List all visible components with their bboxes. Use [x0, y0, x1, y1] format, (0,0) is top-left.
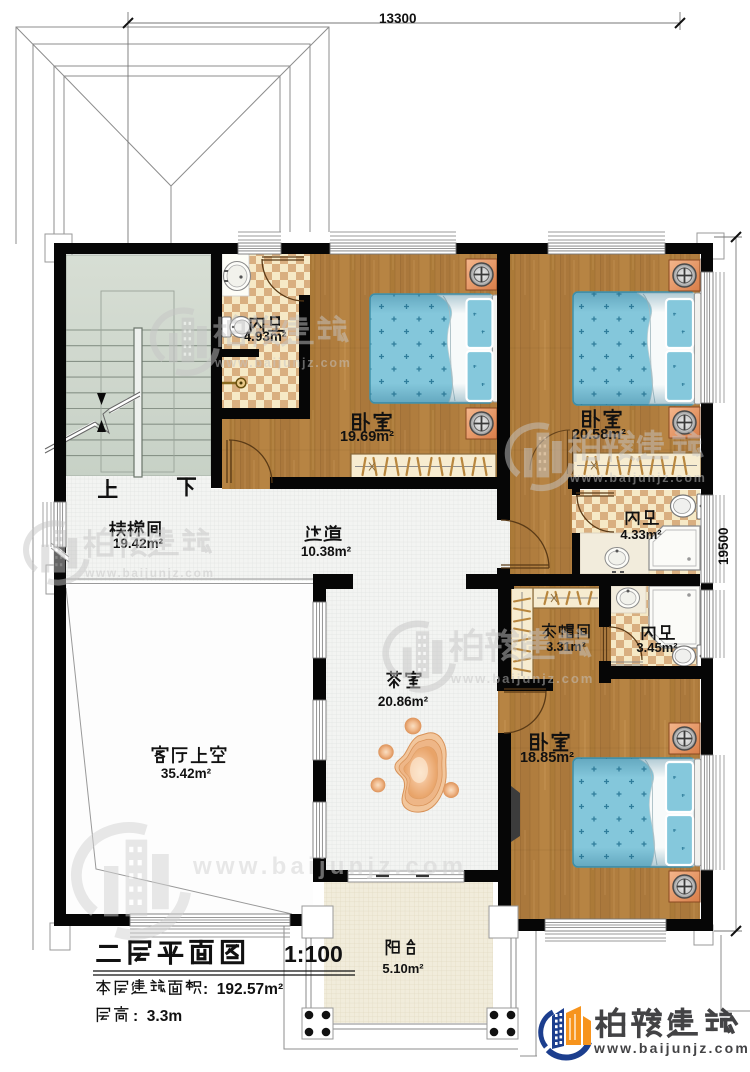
svg-text:35.42m²: 35.42m² [161, 766, 212, 781]
svg-text:www.baijunjz.com: www.baijunjz.com [450, 671, 594, 686]
svg-text:18.85m²: 18.85m² [520, 750, 574, 766]
svg-text:: 3.3m: : 3.3m [133, 1008, 182, 1025]
svg-text:19.69m²: 19.69m² [340, 429, 394, 445]
svg-text:5.10m²: 5.10m² [382, 961, 424, 976]
svg-text:20.86m²: 20.86m² [378, 694, 429, 709]
svg-text:: 192.57m²: : 192.57m² [203, 981, 283, 998]
svg-text:www.baijunjz.com: www.baijunjz.com [192, 853, 467, 880]
svg-text:1:100: 1:100 [284, 941, 343, 967]
svg-text:www.baijunjz.com: www.baijunjz.com [569, 471, 707, 485]
svg-text:10.38m²: 10.38m² [301, 544, 352, 559]
svg-text:13300: 13300 [379, 11, 417, 26]
svg-text:www.baijunjz.com: www.baijunjz.com [84, 566, 215, 580]
svg-text:www.baijunjz.com: www.baijunjz.com [214, 356, 352, 370]
svg-text:4.33m²: 4.33m² [620, 527, 662, 542]
svg-text:www.baijunjz.com: www.baijunjz.com [593, 1040, 750, 1056]
svg-text:19500: 19500 [716, 527, 731, 565]
svg-text:3.45m²: 3.45m² [636, 640, 678, 655]
